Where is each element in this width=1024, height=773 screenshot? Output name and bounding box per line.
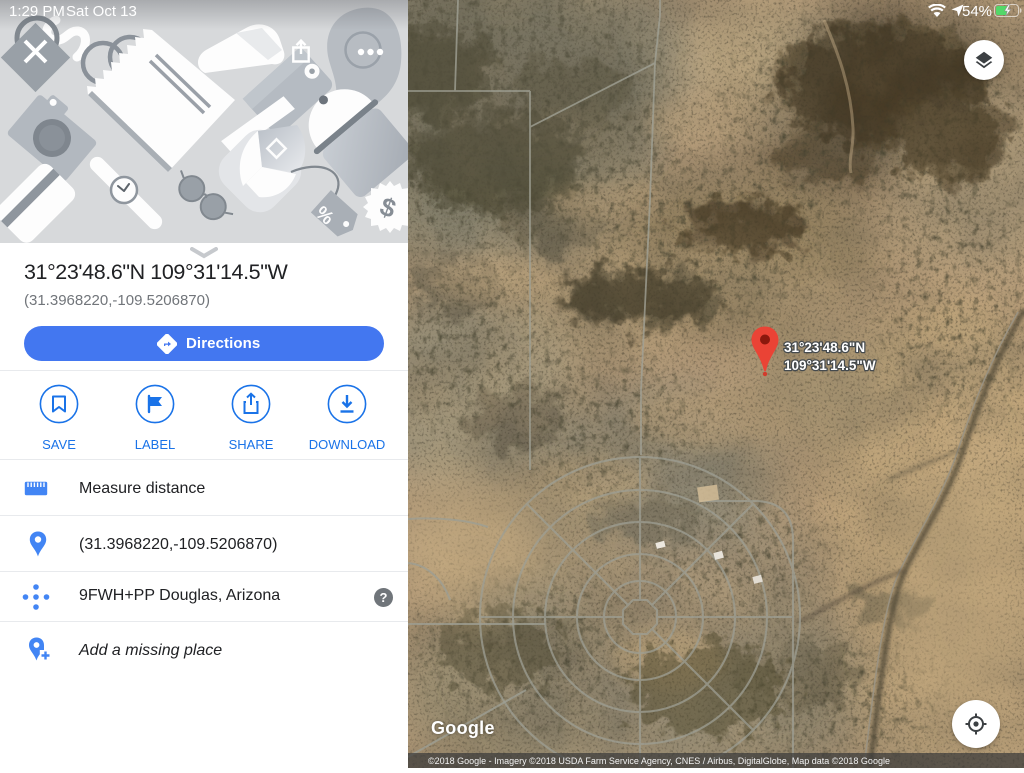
svg-text:31°23'48.6"N: 31°23'48.6"N [784, 340, 865, 355]
svg-text:109°31'14.5"W: 109°31'14.5"W [784, 358, 876, 373]
svg-text:?: ? [380, 590, 388, 605]
